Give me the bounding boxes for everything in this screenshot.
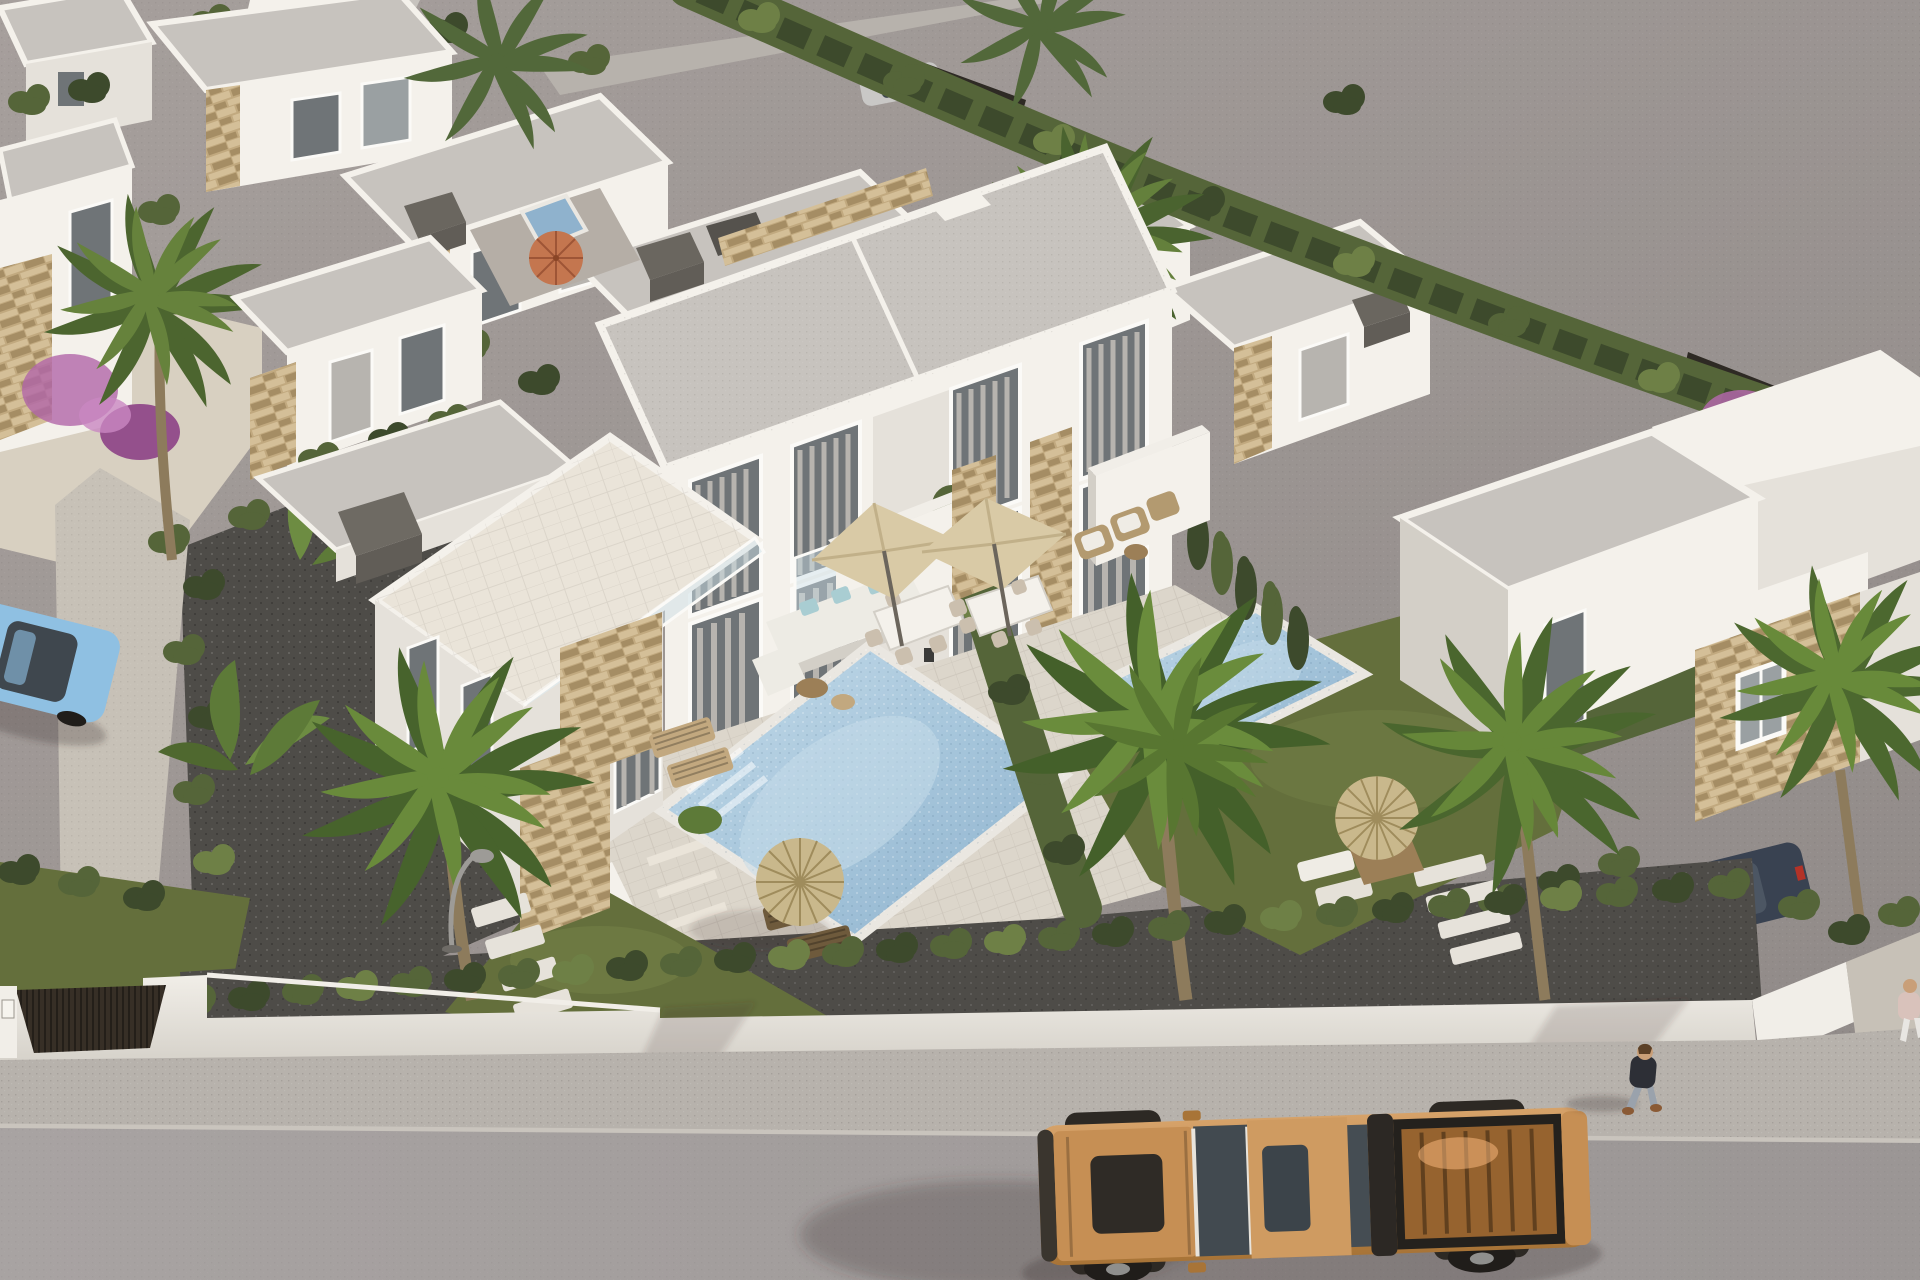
potted-plant: [678, 806, 722, 834]
architectural-render: [0, 0, 1920, 1280]
orange-parasol: [529, 231, 583, 285]
pickup-truck: [1017, 1094, 1604, 1280]
stone-pillar: [520, 735, 610, 942]
